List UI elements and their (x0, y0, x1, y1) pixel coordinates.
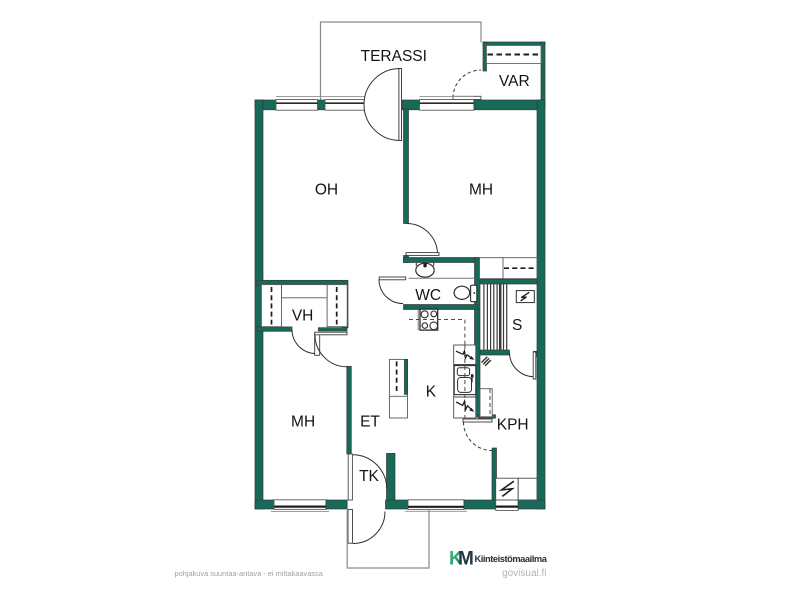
svg-text:S: S (512, 317, 522, 334)
svg-text:govisual.fi: govisual.fi (502, 568, 546, 579)
svg-text:MH: MH (291, 414, 315, 431)
svg-text:K: K (426, 384, 437, 401)
svg-text:TERASSI: TERASSI (361, 48, 427, 65)
svg-text:TK: TK (359, 468, 379, 485)
svg-text:OH: OH (315, 182, 338, 199)
svg-text:Kiinteistömaailma: Kiinteistömaailma (475, 554, 548, 564)
svg-text:M: M (458, 549, 474, 570)
svg-text:pohjakuva suuntaa-antava - ei: pohjakuva suuntaa-antava - ei mittakaava… (175, 569, 324, 578)
svg-text:KPH: KPH (497, 417, 529, 434)
svg-text:MH: MH (469, 182, 493, 199)
svg-text:ET: ET (360, 414, 380, 431)
svg-text:WC: WC (415, 287, 441, 304)
svg-text:VAR: VAR (499, 73, 530, 90)
svg-text:VH: VH (292, 308, 314, 325)
